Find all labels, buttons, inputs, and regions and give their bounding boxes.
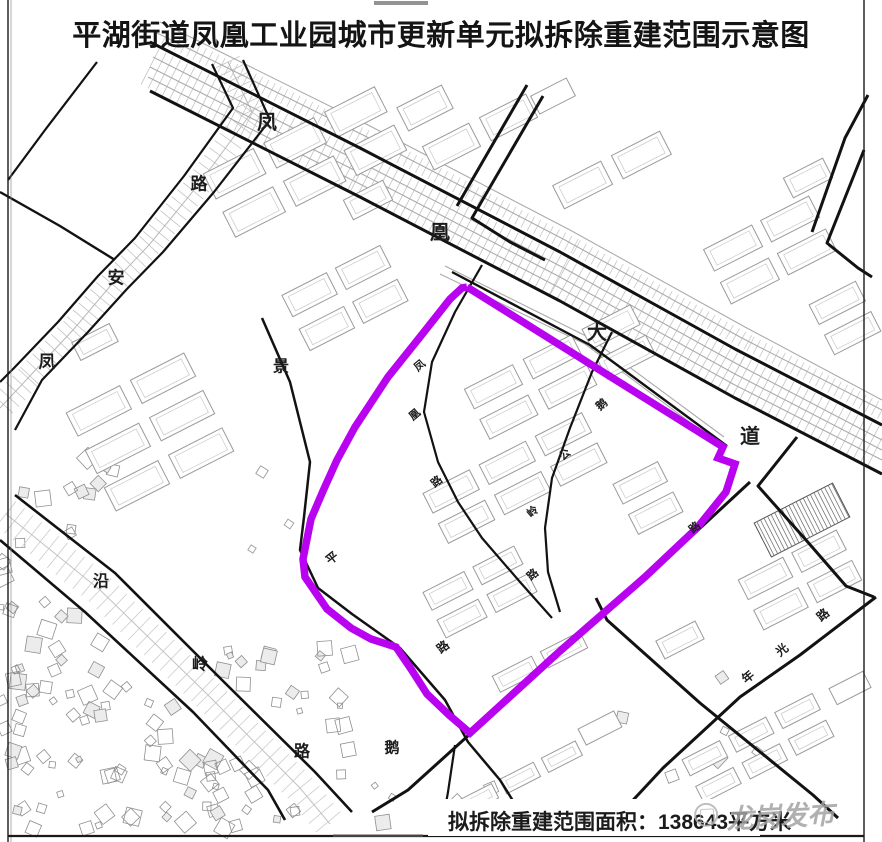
road-label: 道 (740, 424, 760, 448)
road-label: 景 (273, 358, 289, 376)
schematic-map-page: 凤凰大道路安凤景沿岭路鹅平路凤凰路鹅公岭路路路光年 平湖街道凤凰工业园城市更新单… (0, 0, 882, 842)
road-label: 路 (191, 174, 209, 194)
road-label: 沿 (93, 573, 109, 591)
watermark-logo-icon (694, 802, 719, 827)
map-title: 平湖街道凤凰工业园城市更新单元拟拆除重建范围示意图 (0, 12, 882, 54)
map-canvas: 凤凰大道路安凤景沿岭路鹅平路凤凰路鹅公岭路路路光年 (0, 0, 882, 842)
top-stamp-mark (374, 1, 428, 5)
road-label: 岭 (192, 655, 208, 674)
road-label: 鹅 (384, 739, 399, 757)
bottom-fineprint-mark (333, 834, 423, 837)
road-label: 凤 (257, 112, 277, 134)
watermark-text: 龙岗发布 (725, 792, 835, 837)
road-label: 安 (108, 268, 125, 288)
road-label: 路 (294, 742, 311, 761)
road-label: 大 (587, 321, 607, 344)
road-label: 凰 (430, 222, 450, 244)
road-label: 凤 (39, 353, 56, 372)
